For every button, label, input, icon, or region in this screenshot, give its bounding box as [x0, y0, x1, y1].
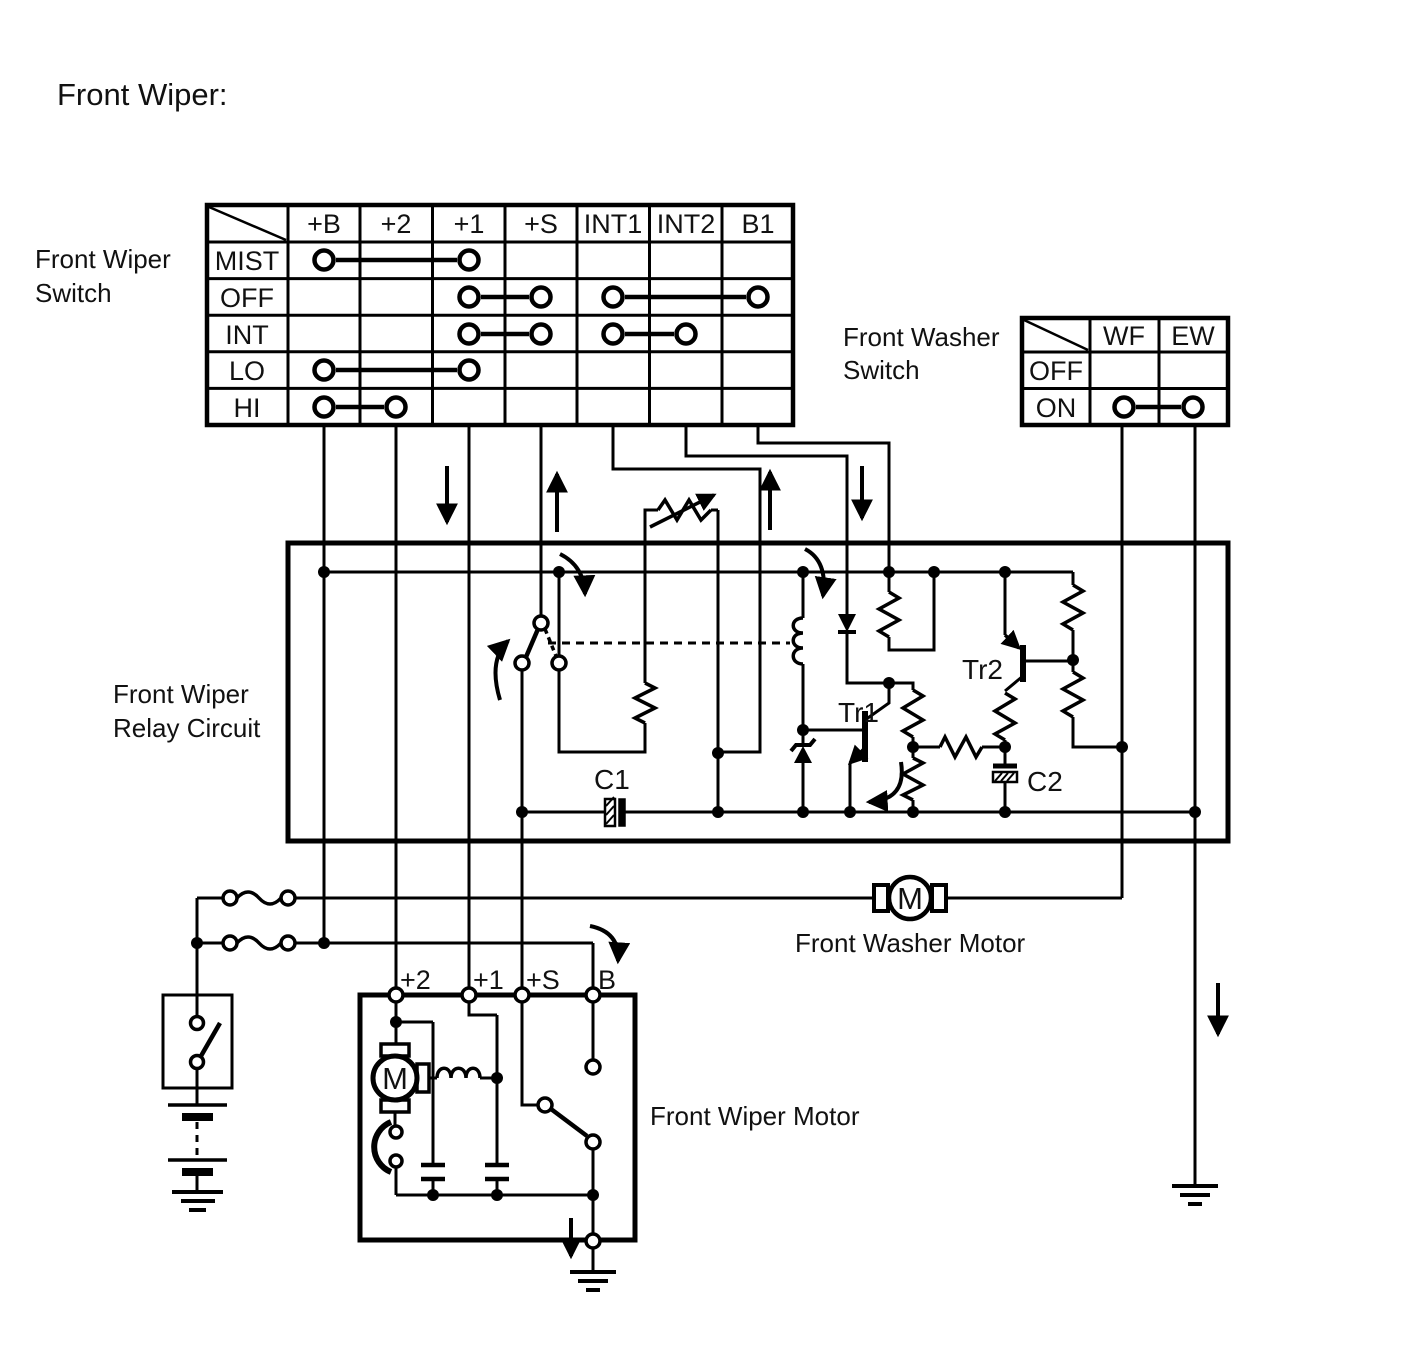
- contact-connection: [460, 361, 479, 380]
- relay-circuit-box: [288, 543, 1228, 841]
- relay-label-line2: Relay Circuit: [113, 713, 261, 743]
- transistor-tr2-icon: [995, 572, 1073, 747]
- capacitor-icon: [421, 1165, 445, 1179]
- resistor-icon: [635, 683, 655, 723]
- ground-icon: [570, 1272, 616, 1290]
- terminal-label: +2: [400, 965, 431, 995]
- contact-connection: [460, 251, 479, 270]
- row-header: LO: [229, 356, 265, 386]
- contact-connection: [387, 398, 406, 417]
- wiper-motor-box: [360, 988, 635, 1290]
- wiper-motor-label: Front Wiper Motor: [650, 1101, 860, 1131]
- col-header: INT1: [584, 209, 643, 239]
- washer-motor-symbol: M: [897, 881, 923, 916]
- zener-diode-icon: [791, 730, 815, 812]
- capacitor-c1-icon: [522, 797, 1195, 826]
- curved-arrow-icon: [496, 641, 509, 700]
- contact-connection: [315, 398, 334, 417]
- row-header: MIST: [215, 246, 280, 276]
- ground-icon: [1172, 1186, 1218, 1204]
- front-wiper-wiring-diagram: Front Wiper: Front Wiper Switch Front Wa…: [0, 0, 1424, 1361]
- cam-contact-icon: [374, 1112, 402, 1195]
- contact-connection: [1115, 398, 1134, 417]
- page-title: Front Wiper:: [57, 77, 228, 112]
- contact-connection: [460, 325, 479, 344]
- wire-int1: [613, 425, 760, 752]
- c1-label: C1: [594, 764, 630, 795]
- wiper-motor-terminal-labels: +2 +1 +S B: [400, 965, 616, 995]
- washer-switch-label: Front Washer Switch: [843, 322, 1000, 385]
- diode-icon: [838, 614, 913, 690]
- table-diagonal: [209, 207, 286, 240]
- row-header: OFF: [1029, 356, 1083, 386]
- diagram-canvas: Front Wiper: Front Wiper Switch Front Wa…: [0, 0, 1424, 1361]
- col-header: +2: [381, 209, 412, 239]
- wiper-motor-symbol: M: [382, 1061, 408, 1096]
- motor-terminals: [389, 988, 600, 1248]
- battery-icon: [168, 1105, 227, 1190]
- capacitor-c2-icon: [993, 747, 1017, 812]
- contact-connection: [532, 325, 551, 344]
- wiper-switch-label: Front Wiper Switch: [35, 244, 171, 308]
- row-header: HI: [234, 393, 261, 423]
- contact-connection: [532, 288, 551, 307]
- washer-switch-label-line2: Switch: [843, 355, 920, 385]
- terminal-label: B: [598, 965, 616, 995]
- col-header: +B: [307, 209, 341, 239]
- resistor-icon: [879, 572, 934, 650]
- terminal-label: +S: [526, 965, 560, 995]
- contact-connection: [677, 325, 696, 344]
- contact-connection: [315, 361, 334, 380]
- relay-label-line1: Front Wiper: [113, 679, 249, 709]
- curved-arrow-icon: [869, 762, 902, 802]
- col-header: INT2: [657, 209, 716, 239]
- row-header: INT: [225, 320, 269, 350]
- table-diagonal: [1024, 320, 1088, 350]
- contact-connection: [749, 288, 768, 307]
- tr2-label: Tr2: [962, 654, 1003, 685]
- row-header: ON: [1036, 393, 1077, 423]
- col-header: WF: [1103, 321, 1145, 351]
- col-header: B1: [741, 209, 774, 239]
- tr1-label: Tr1: [838, 697, 879, 728]
- washer-switch-label-line1: Front Washer: [843, 322, 1000, 352]
- contact-connection: [315, 251, 334, 270]
- inductor-icon: [429, 1068, 497, 1078]
- col-header: +1: [454, 209, 485, 239]
- contact-connection: [604, 288, 623, 307]
- fuse-icon: [223, 936, 295, 950]
- resistor-icon: [913, 737, 1005, 757]
- wiper-switch-label-line2: Switch: [35, 278, 112, 308]
- wiper-switch-label-line1: Front Wiper: [35, 244, 171, 274]
- contact-connection: [1184, 398, 1203, 417]
- wiper-switch-connections: [315, 251, 768, 417]
- relay-coil-icon: [793, 572, 803, 730]
- wiper-switch-column-headers: +B +2 +1 +S INT1 INT2 B1: [307, 209, 774, 239]
- power-supply-section: [163, 891, 874, 1210]
- wiper-switch-row-headers: MIST OFF INT LO HI: [215, 246, 280, 423]
- ground-icon: [172, 1192, 223, 1210]
- terminal-label: +1: [473, 965, 504, 995]
- col-header: EW: [1171, 321, 1215, 351]
- contact-connection: [604, 325, 623, 344]
- row-header: OFF: [220, 283, 274, 313]
- wire-b1: [758, 425, 889, 572]
- relay-circuit-label: Front Wiper Relay Circuit: [113, 679, 261, 743]
- washer-motor-label: Front Washer Motor: [795, 928, 1026, 958]
- c2-label: C2: [1027, 766, 1063, 797]
- park-switch-icon: [522, 1002, 600, 1195]
- flow-arrows: [447, 466, 1218, 1256]
- fuse-icon: [223, 891, 295, 905]
- col-header: +S: [524, 209, 558, 239]
- capacitor-icon: [485, 1165, 509, 1179]
- contact-connection: [460, 288, 479, 307]
